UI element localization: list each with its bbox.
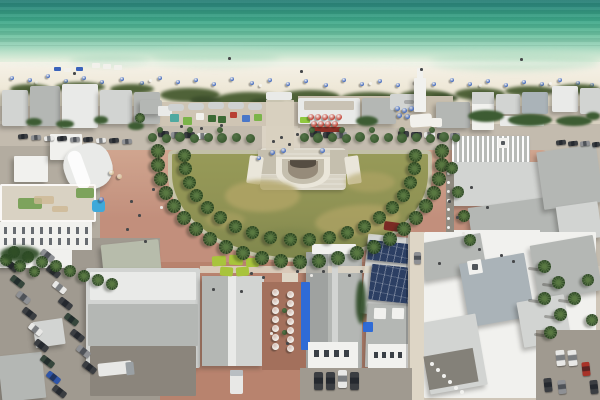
- person: [520, 58, 523, 61]
- person: [262, 276, 265, 279]
- person: [310, 274, 313, 277]
- person: [160, 206, 163, 209]
- person: [478, 248, 481, 251]
- person: [220, 124, 223, 127]
- person: [462, 232, 465, 235]
- person: [470, 186, 473, 189]
- person: [348, 274, 351, 277]
- person: [322, 270, 325, 273]
- person: [240, 290, 243, 293]
- person: [200, 127, 203, 130]
- person: [212, 288, 215, 291]
- person: [456, 216, 459, 219]
- person: [144, 240, 147, 243]
- person: [296, 270, 299, 273]
- person: [130, 200, 133, 203]
- person: [360, 270, 363, 273]
- person: [512, 260, 515, 263]
- person: [300, 70, 303, 73]
- person: [73, 72, 76, 75]
- person: [486, 206, 489, 209]
- person: [288, 143, 291, 146]
- person: [270, 332, 273, 335]
- person: [272, 140, 275, 143]
- person: [228, 57, 231, 60]
- person: [420, 68, 423, 71]
- person: [250, 272, 253, 275]
- person: [286, 342, 289, 345]
- person: [152, 188, 155, 191]
- person: [126, 228, 129, 231]
- person: [138, 214, 141, 217]
- aerial-town-square-photo: [0, 0, 600, 400]
- person: [500, 254, 503, 257]
- people-layer: [0, 0, 600, 400]
- person: [438, 262, 441, 265]
- person: [448, 200, 451, 203]
- person: [280, 136, 283, 139]
- person: [180, 125, 183, 128]
- person: [296, 133, 299, 136]
